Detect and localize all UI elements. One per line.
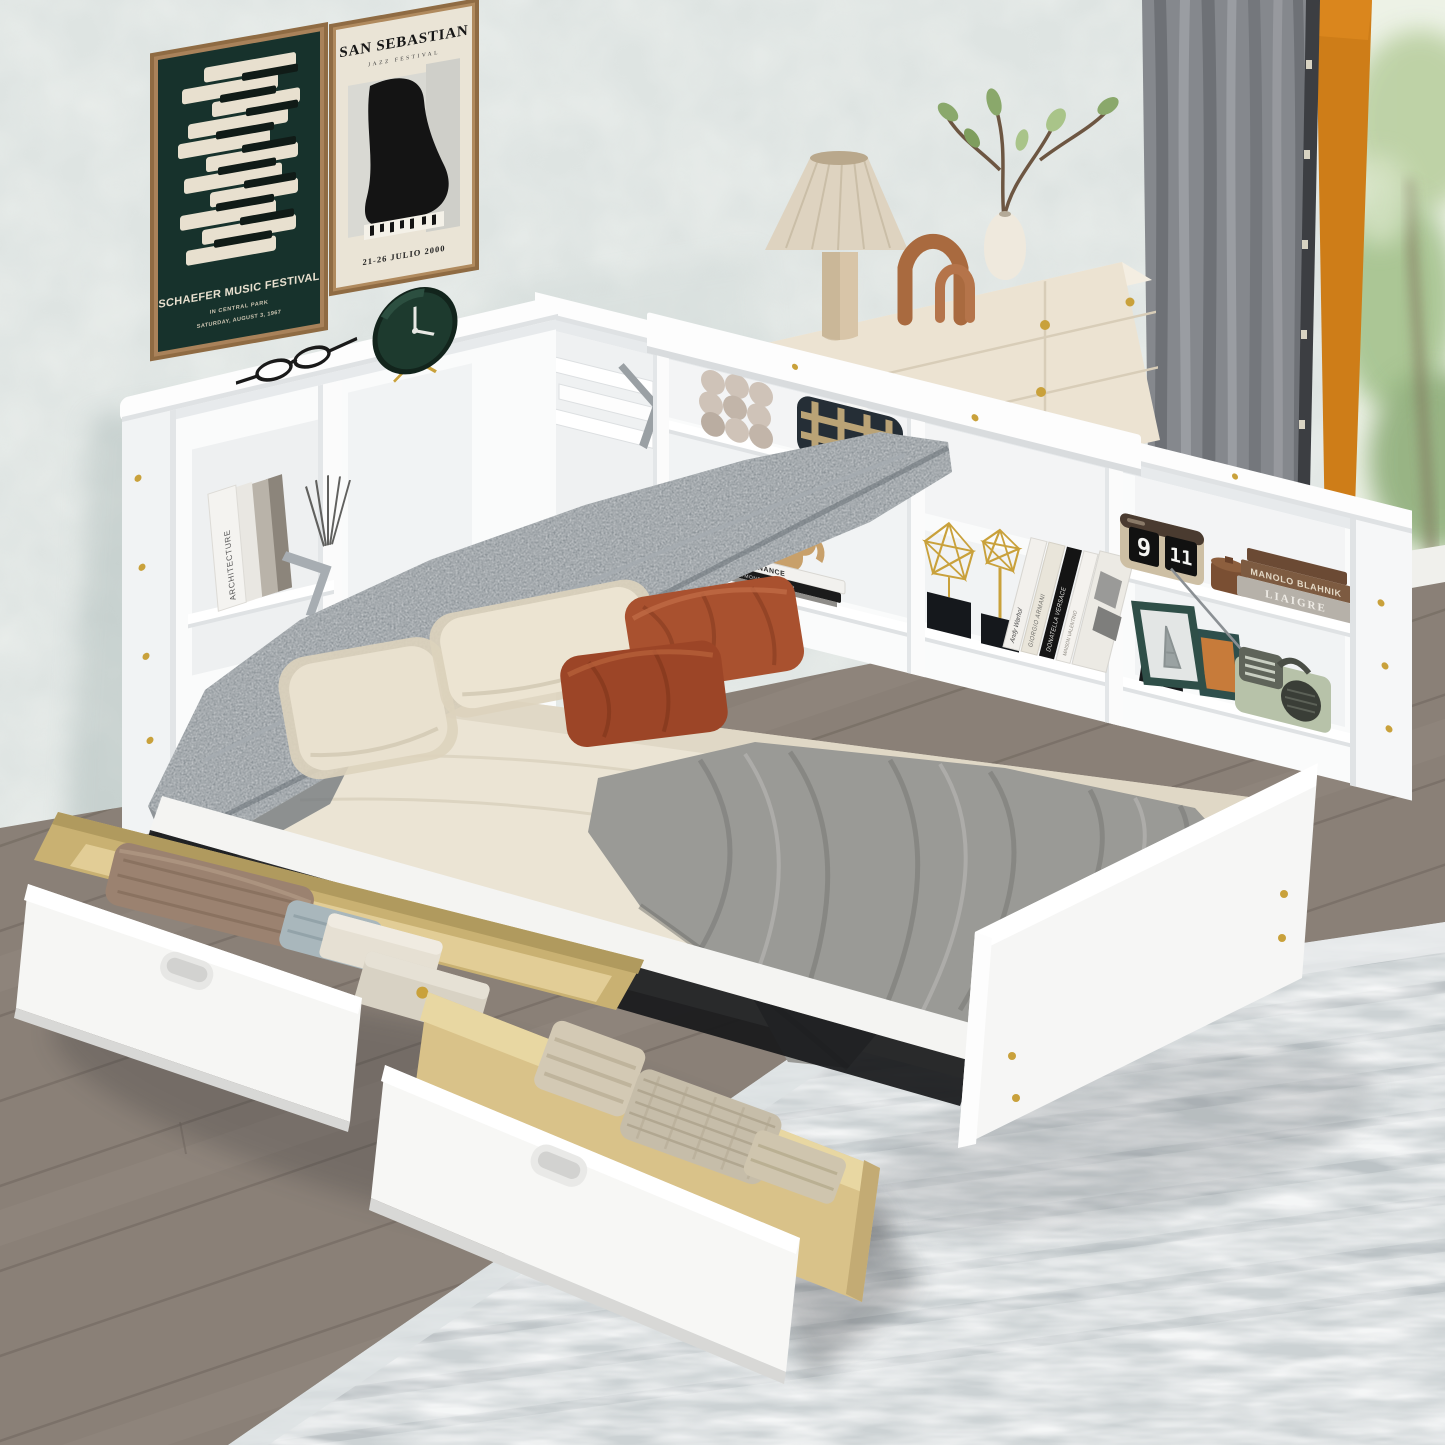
poster-jazz-festival: SAN SEBASTIAN JAZZ FESTIVAL 21-26 JULIO … xyxy=(329,0,479,296)
architecture-books: ARCHITECTURE xyxy=(208,470,292,611)
poster-music-festival: SCHAEFER MUSIC FESTIVAL IN CENTRAL PARK … xyxy=(150,22,328,361)
pillow-rust-2 xyxy=(558,638,730,749)
bedroom-scene: SCHAEFER MUSIC FESTIVAL IN CENTRAL PARK … xyxy=(0,0,1445,1445)
scene-canvas: SCHAEFER MUSIC FESTIVAL IN CENTRAL PARK … xyxy=(0,0,1445,1445)
flip-clock-left-digit: 9 xyxy=(1137,531,1151,563)
